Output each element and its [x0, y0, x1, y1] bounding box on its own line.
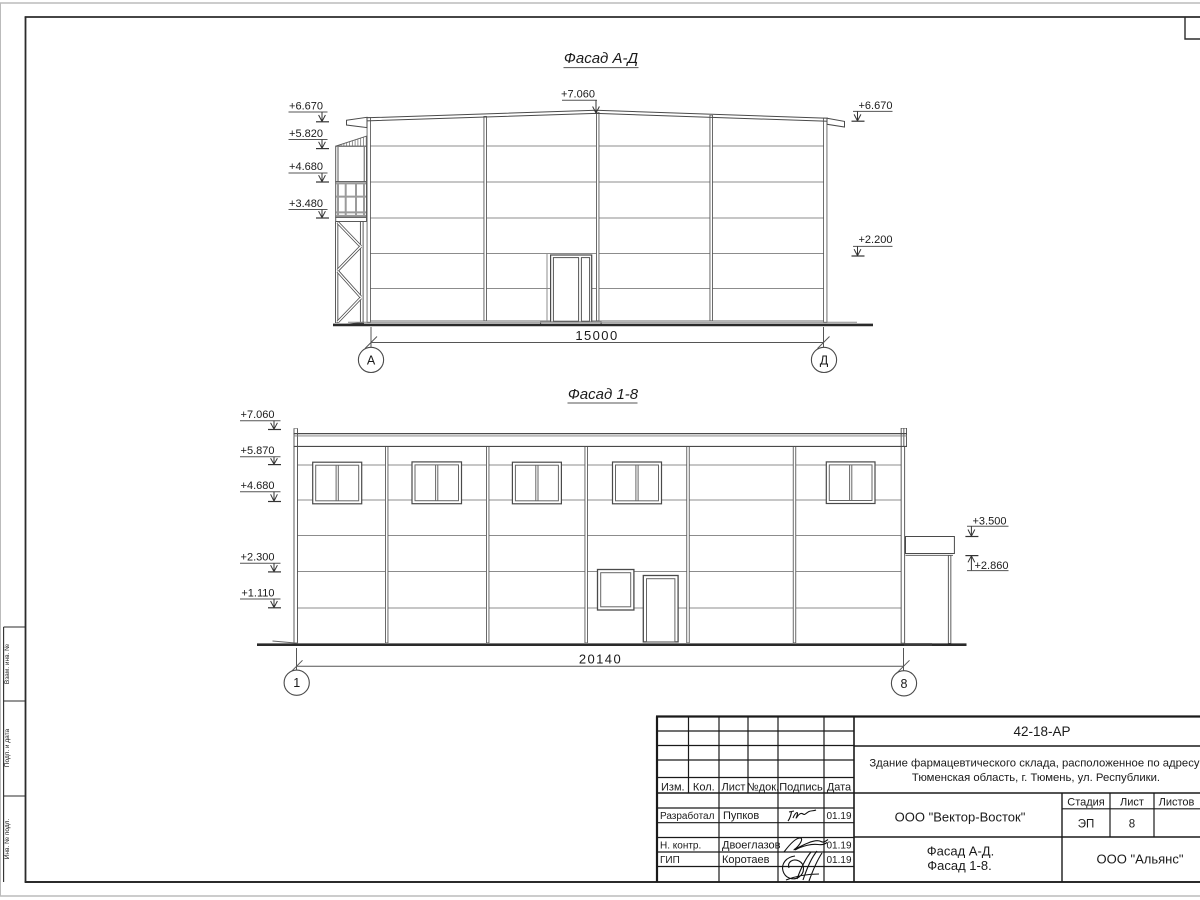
- svg-text:Взам. инв. №: Взам. инв. №: [4, 644, 11, 684]
- svg-text:+4.680: +4.680: [241, 480, 275, 492]
- svg-text:01.19: 01.19: [826, 840, 851, 851]
- svg-text:ЭП: ЭП: [1078, 818, 1095, 830]
- svg-text:№док.: №док.: [747, 781, 779, 793]
- svg-text:Н. контр.: Н. контр.: [660, 840, 701, 851]
- svg-text:+4.680: +4.680: [289, 161, 323, 173]
- svg-text:Лист: Лист: [722, 781, 746, 793]
- svg-text:8: 8: [901, 677, 908, 691]
- svg-text:1: 1: [293, 676, 300, 690]
- svg-text:Подпись: Подпись: [779, 781, 823, 793]
- svg-text:20140: 20140: [579, 652, 622, 667]
- svg-text:Фасад 1-8.: Фасад 1-8.: [927, 858, 991, 873]
- svg-text:+5.870: +5.870: [241, 445, 275, 457]
- svg-text:42-18-АР: 42-18-АР: [1013, 724, 1070, 739]
- svg-text:Фасад 1-8: Фасад 1-8: [568, 386, 639, 403]
- svg-text:Д: Д: [820, 353, 829, 367]
- svg-text:Фасад А-Д: Фасад А-Д: [564, 50, 639, 67]
- svg-text:+2.860: +2.860: [975, 560, 1009, 572]
- svg-text:ООО "Вектор-Восток": ООО "Вектор-Восток": [895, 810, 1026, 825]
- svg-text:Лист: Лист: [1120, 796, 1144, 808]
- svg-text:Пупков: Пупков: [723, 810, 759, 822]
- svg-text:Подп. и дата: Подп. и дата: [4, 728, 11, 767]
- svg-text:Листов: Листов: [1159, 796, 1195, 808]
- svg-text:Тюменская область, г. Тюмень,: Тюменская область, г. Тюмень, ул. Респуб…: [912, 772, 1160, 784]
- svg-text:+2.300: +2.300: [241, 551, 275, 563]
- svg-text:Двоеглазов: Двоеглазов: [722, 839, 781, 851]
- svg-text:+2.200: +2.200: [859, 234, 893, 246]
- svg-text:Кол.: Кол.: [693, 781, 715, 793]
- svg-text:Здание фармацевтического склад: Здание фармацевтического склада, располо…: [869, 758, 1200, 770]
- svg-text:+1.110: +1.110: [241, 587, 274, 599]
- svg-text:+3.500: +3.500: [973, 515, 1007, 527]
- svg-text:+7.060: +7.060: [561, 89, 595, 101]
- svg-text:+3.480: +3.480: [289, 198, 323, 210]
- svg-text:Фасад А-Д.: Фасад А-Д.: [927, 844, 994, 859]
- svg-text:Инв. № подл.: Инв. № подл.: [4, 819, 11, 860]
- svg-text:Коротаев: Коротаев: [722, 854, 770, 866]
- svg-text:8: 8: [1129, 818, 1135, 830]
- svg-text:+5.820: +5.820: [289, 128, 323, 140]
- svg-text:А: А: [367, 353, 376, 367]
- svg-text:+6.670: +6.670: [289, 100, 323, 112]
- svg-text:Разработал: Разработал: [660, 810, 715, 822]
- svg-text:+7.060: +7.060: [241, 409, 275, 421]
- svg-text:ООО "Альянс": ООО "Альянс": [1097, 851, 1184, 866]
- svg-text:Изм.: Изм.: [661, 781, 685, 793]
- svg-text:15000: 15000: [575, 328, 618, 343]
- svg-text:+6.670: +6.670: [859, 100, 893, 112]
- svg-text:Стадия: Стадия: [1067, 796, 1105, 808]
- svg-text:ГИП: ГИП: [660, 855, 680, 866]
- svg-text:Дата: Дата: [827, 781, 852, 793]
- svg-text:01.19: 01.19: [826, 855, 851, 866]
- svg-text:01.19: 01.19: [826, 811, 851, 822]
